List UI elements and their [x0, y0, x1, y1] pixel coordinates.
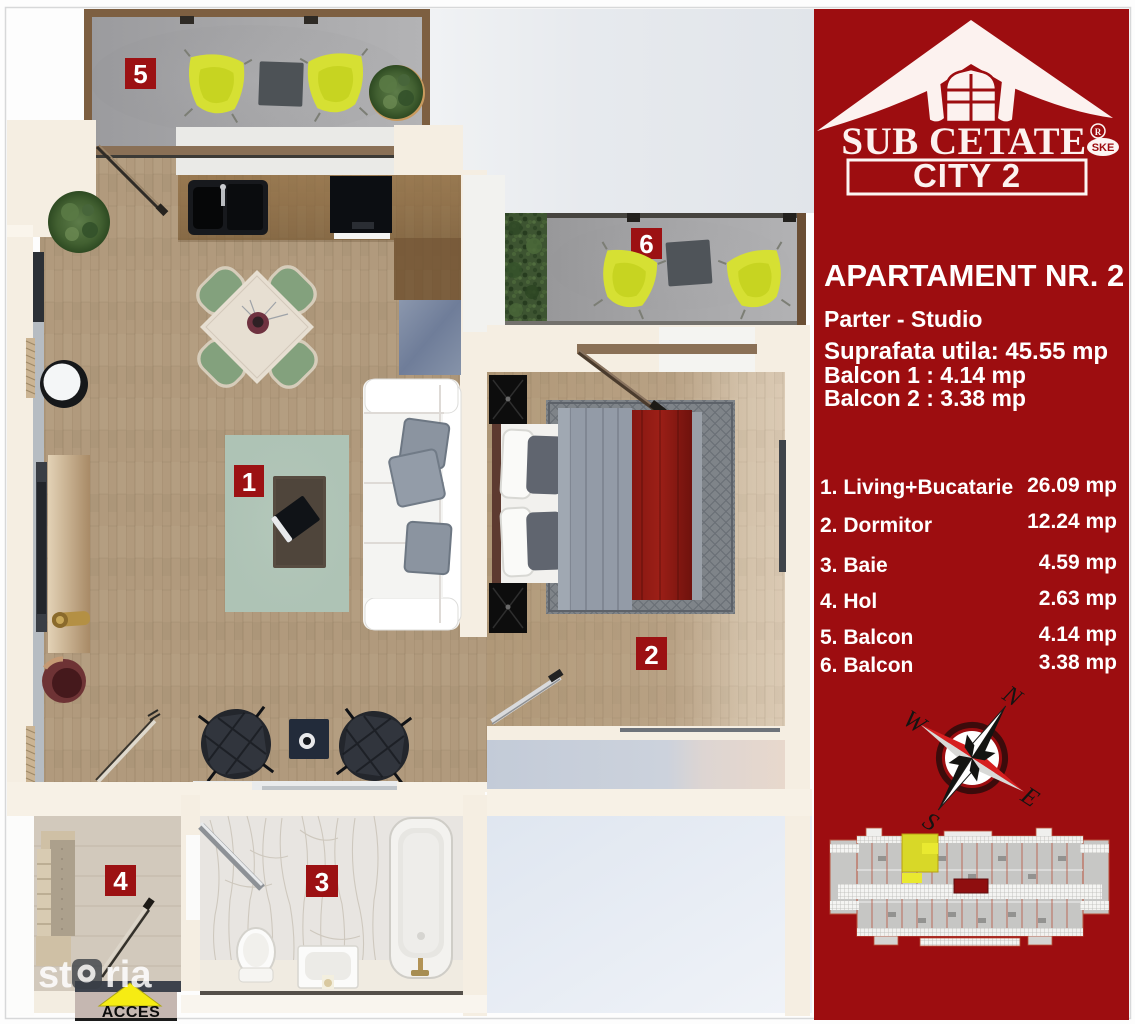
svg-text:3. Baie: 3. Baie	[820, 554, 888, 577]
svg-text:3: 3	[315, 867, 329, 897]
svg-text:ACCES: ACCES	[102, 1004, 161, 1021]
svg-text:R: R	[1095, 127, 1102, 137]
svg-text:4. Hol: 4. Hol	[820, 590, 877, 613]
svg-text:4.59 mp: 4.59 mp	[1039, 551, 1117, 574]
svg-text:1. Living+Bucatarie: 1. Living+Bucatarie	[820, 476, 1013, 499]
svg-text:4: 4	[113, 866, 128, 896]
svg-text:Balcon 2 : 3.38 mp: Balcon 2 : 3.38 mp	[824, 385, 1026, 411]
svg-text:26.09 mp: 26.09 mp	[1027, 474, 1117, 497]
svg-text:ria: ria	[105, 954, 152, 996]
svg-text:5. Balcon: 5. Balcon	[820, 626, 913, 649]
svg-text:1: 1	[242, 467, 256, 497]
svg-text:SKE: SKE	[1092, 142, 1115, 154]
svg-text:APARTAMENT NR. 2: APARTAMENT NR. 2	[824, 258, 1124, 293]
svg-text:CITY 2: CITY 2	[913, 157, 1021, 194]
svg-text:2. Dormitor: 2. Dormitor	[820, 514, 932, 537]
svg-text:4.14 mp: 4.14 mp	[1039, 623, 1117, 646]
svg-text:12.24 mp: 12.24 mp	[1027, 510, 1117, 533]
svg-text:3.38 mp: 3.38 mp	[1039, 651, 1117, 674]
svg-text:2: 2	[644, 640, 658, 670]
svg-text:Parter - Studio: Parter - Studio	[824, 306, 982, 332]
svg-text:5: 5	[133, 59, 147, 89]
svg-text:st: st	[38, 954, 72, 996]
svg-text:6. Balcon: 6. Balcon	[820, 654, 913, 677]
svg-text:Suprafata utila: 45.55 mp: Suprafata utila: 45.55 mp	[824, 338, 1108, 365]
svg-text:2.63 mp: 2.63 mp	[1039, 587, 1117, 610]
